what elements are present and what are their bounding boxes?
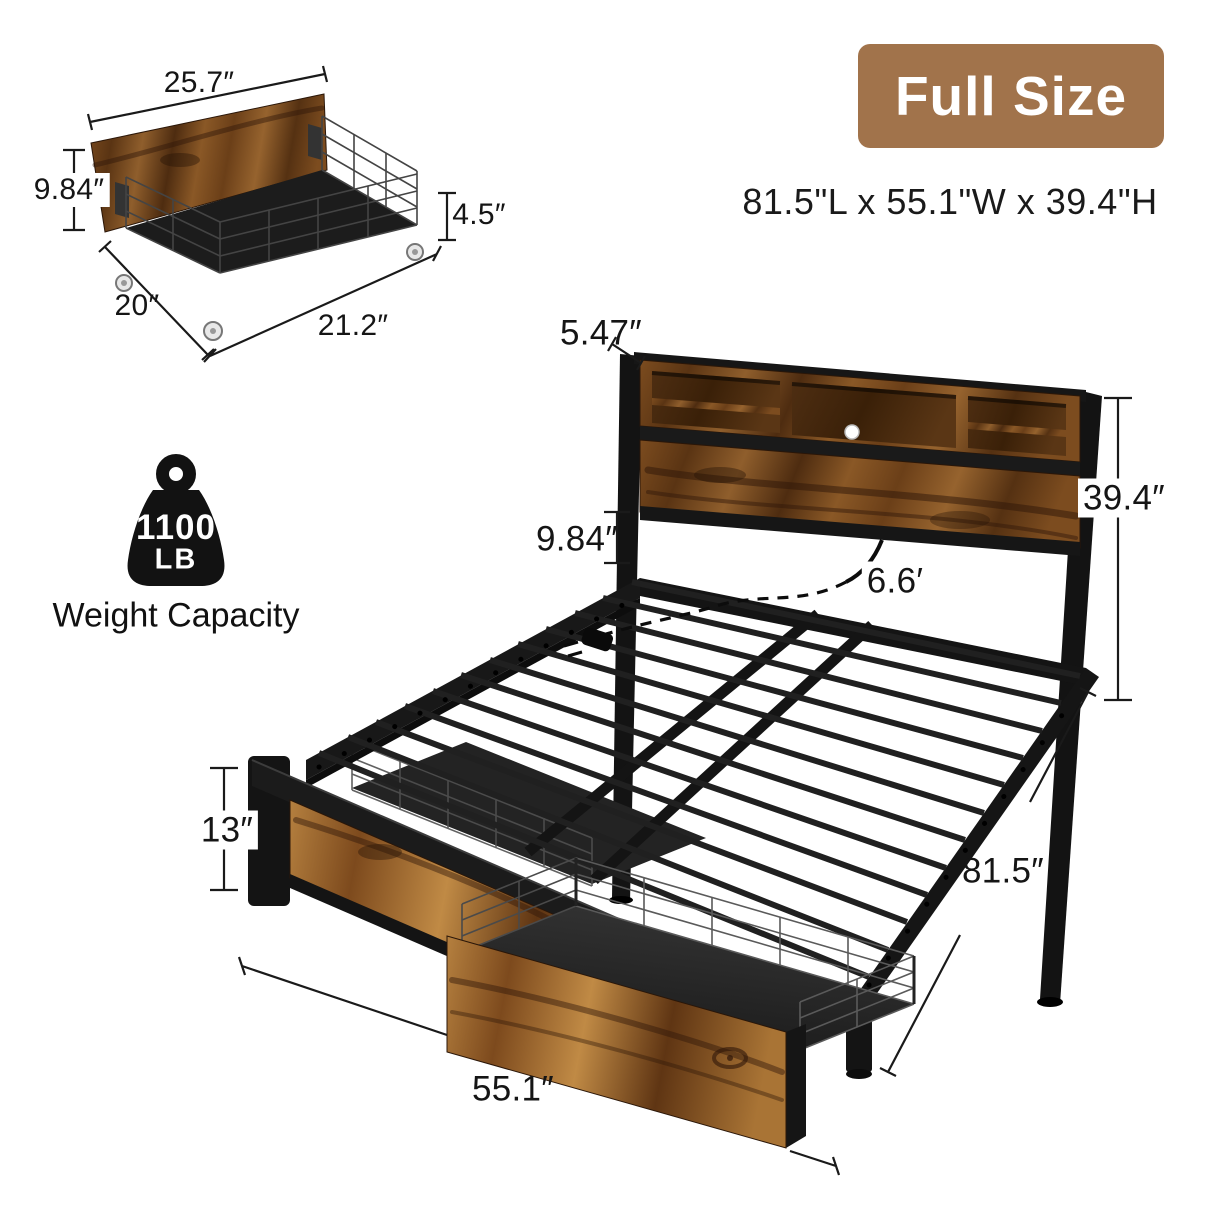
- overall-dimensions-text: 81.5"L x 55.1"W x 39.4"H: [742, 181, 1157, 223]
- dim-label-headboard-height: 39.4″: [1078, 479, 1170, 518]
- dim-label-drawer-top-width: 25.7″: [164, 68, 235, 98]
- weight-caption: Weight Capacity: [53, 597, 300, 636]
- main-bed-art: [248, 352, 1102, 1148]
- dim-label-drawer-depth: 20″: [115, 291, 160, 321]
- dim-label-under-clearance: 9.84″: [536, 522, 618, 557]
- dim-line-headboard-height: [1104, 398, 1132, 700]
- dim-label-drawer-front-height: 9.84″: [29, 173, 110, 207]
- dim-label-bed-length: 81.5″: [962, 854, 1044, 889]
- size-badge: Full Size: [858, 44, 1164, 148]
- product-infographic: Full Size 81.5"L x 55.1"W x 39.4"H 1100 …: [0, 0, 1214, 1214]
- dim-label-cord-length: 6.6′: [862, 562, 928, 601]
- dim-label-footboard-height: 13″: [196, 811, 258, 850]
- size-badge-label: Full Size: [895, 64, 1127, 128]
- dim-label-bed-width: 55.1″: [472, 1072, 554, 1107]
- dim-label-drawer-side-height: 4.5″: [452, 200, 506, 230]
- dim-label-headboard-top-depth: 5.47″: [560, 316, 642, 351]
- dim-label-drawer-bottom-width: 21.2″: [318, 311, 389, 341]
- weight-unit: LB: [155, 544, 198, 577]
- headboard-cable-hole: [845, 425, 859, 439]
- weight-value: 1100: [136, 508, 216, 548]
